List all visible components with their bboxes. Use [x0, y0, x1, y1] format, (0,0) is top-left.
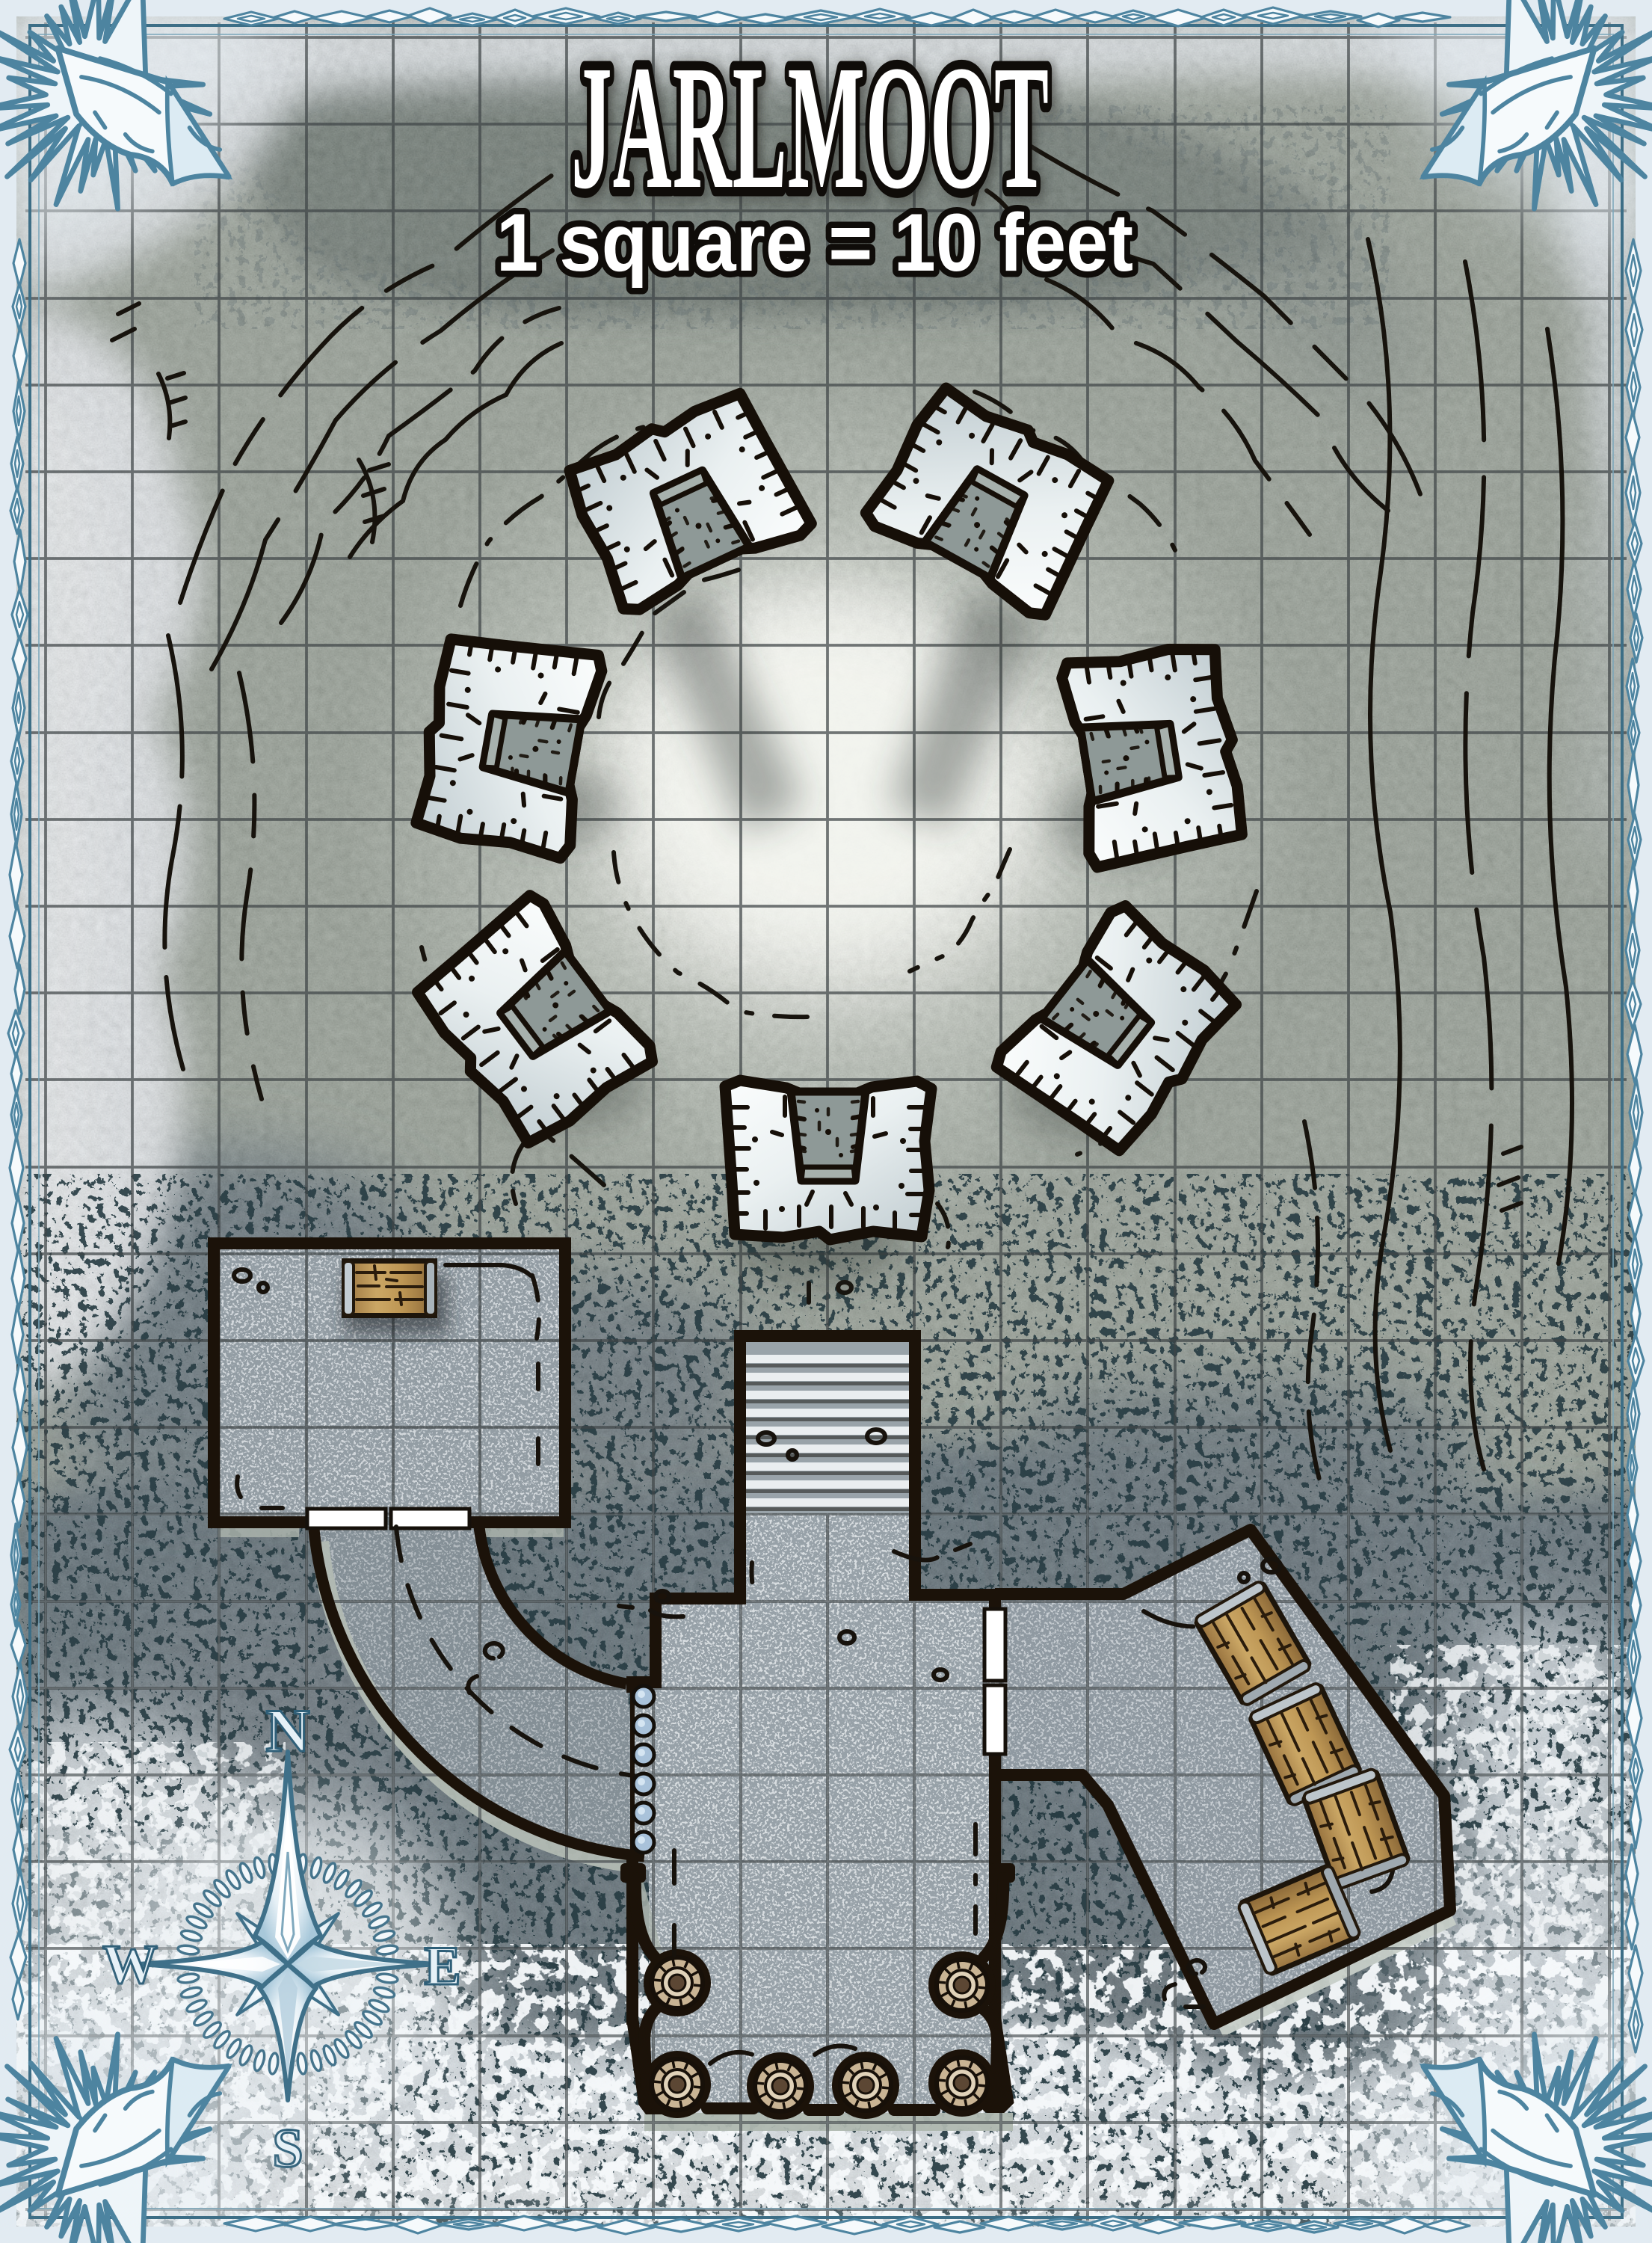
svg-text:W: W	[102, 1934, 158, 1996]
svg-text:1 square = 10 feet: 1 square = 10 feet	[496, 197, 1133, 289]
svg-text:N: N	[265, 1696, 309, 1764]
svg-text:S: S	[272, 2118, 303, 2179]
svg-text:E: E	[424, 1936, 460, 1997]
